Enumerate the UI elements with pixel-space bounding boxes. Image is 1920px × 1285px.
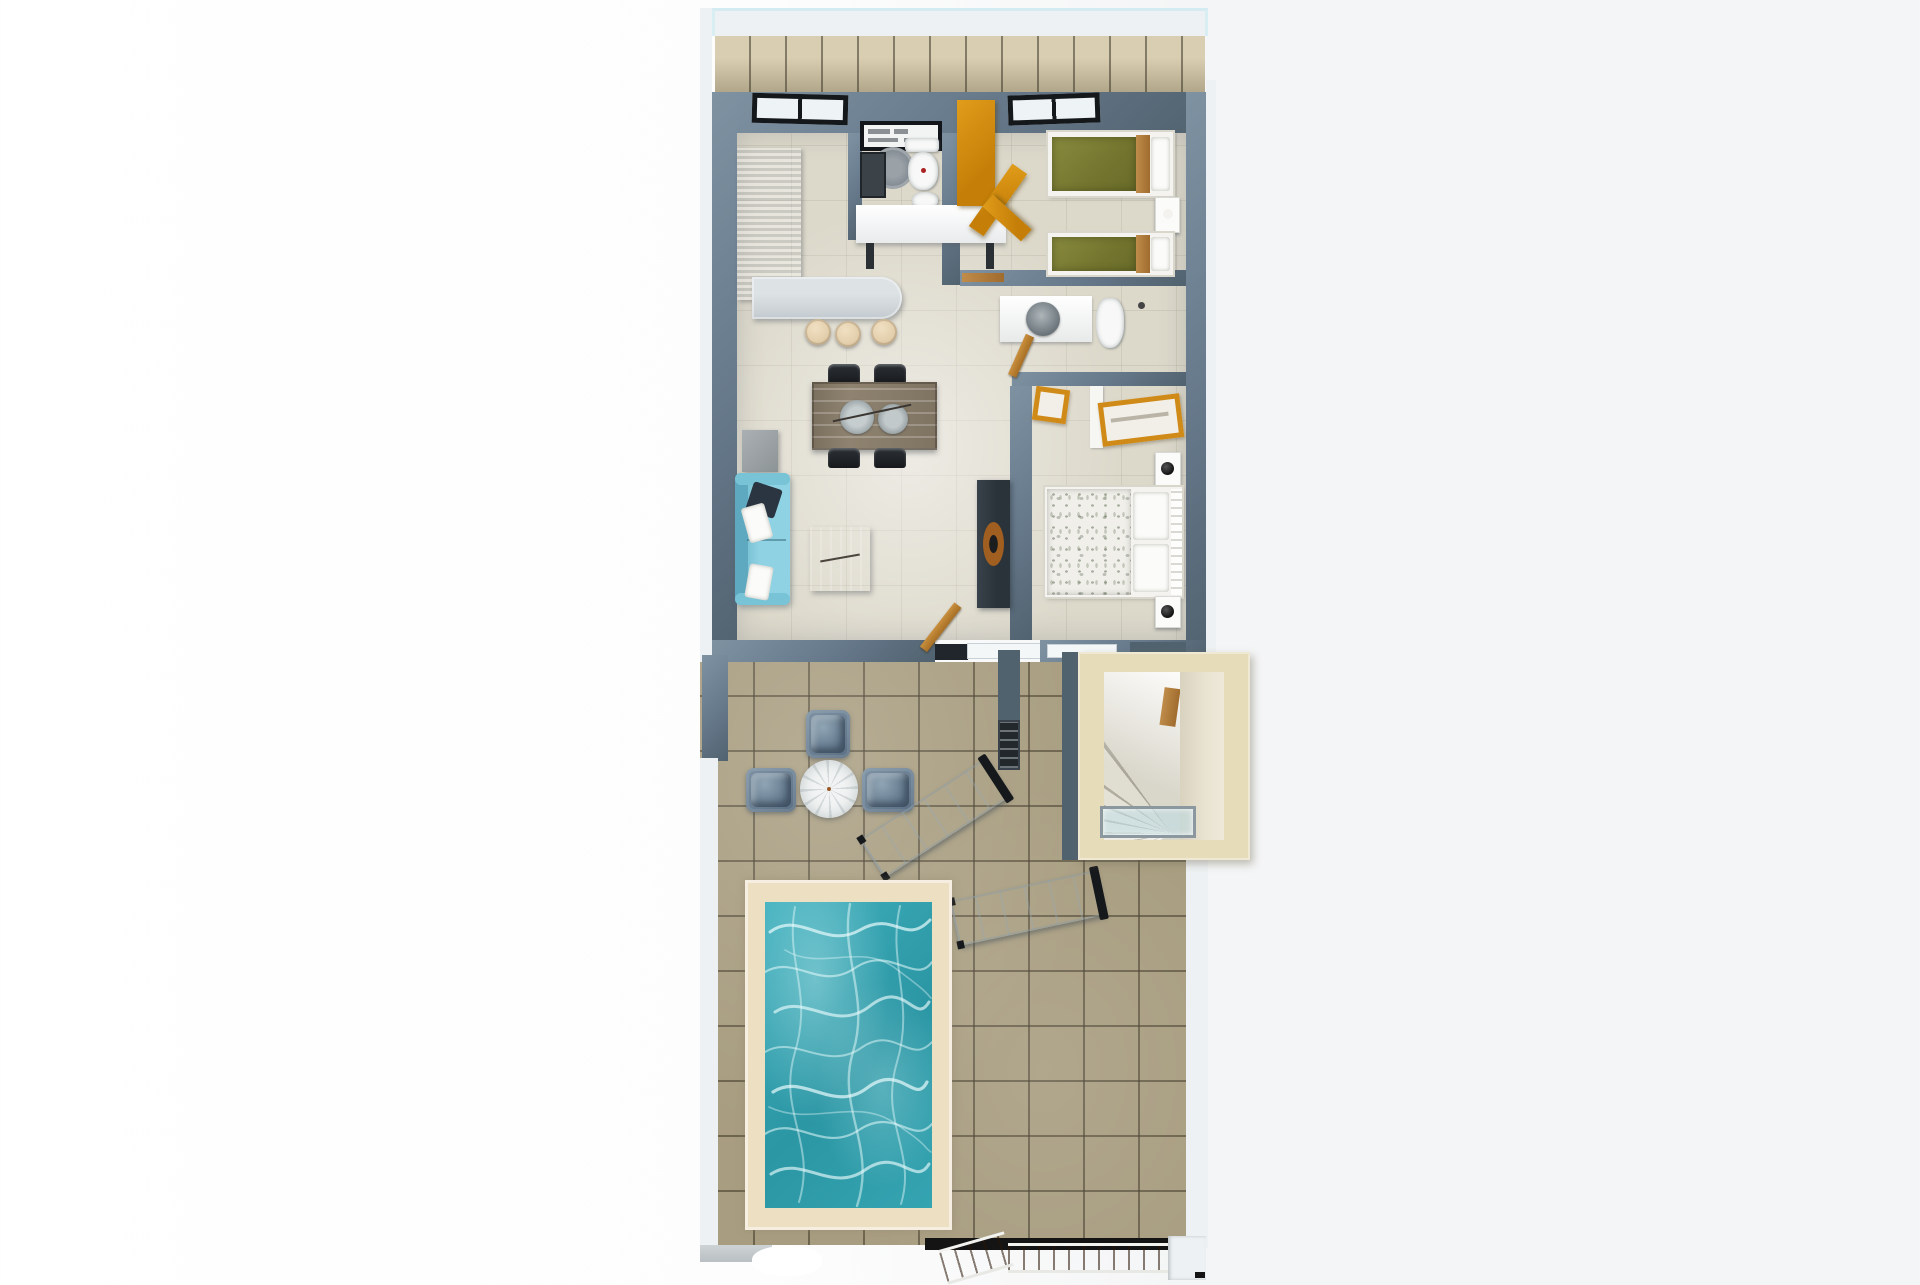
balcony-railing <box>712 8 1208 36</box>
coffee-table-decor <box>820 554 860 563</box>
floor-plan-render <box>0 0 1920 1280</box>
lounger-foot <box>956 940 965 949</box>
patterned-duvet <box>1047 489 1131 595</box>
outer-wall-right <box>1206 80 1216 662</box>
terrace-wall-left <box>700 758 718 1248</box>
bed-mattress <box>1052 237 1136 271</box>
wood-nightstand <box>1155 197 1180 233</box>
glass-railing <box>1100 806 1196 838</box>
coffee-table <box>810 527 870 591</box>
toilet <box>908 152 938 190</box>
toilet <box>1096 298 1124 348</box>
wall-corridor <box>1010 386 1032 640</box>
sofa <box>735 473 790 605</box>
dining-chair <box>828 364 860 384</box>
bar-stool <box>871 319 897 345</box>
pool-ripples <box>765 902 932 1208</box>
luggage-bench <box>1032 386 1070 424</box>
terrace-wall-stub-left <box>702 655 728 761</box>
round-basin <box>1026 302 1060 336</box>
side-table <box>742 430 778 472</box>
orange-desk <box>957 100 995 206</box>
bed-pillow <box>1133 492 1169 540</box>
dark-vanity <box>860 152 886 198</box>
stairwell-opening <box>1104 672 1224 840</box>
nightstand-knob <box>1163 209 1173 219</box>
terrace-armchair <box>862 768 914 812</box>
kitchen-window <box>752 93 849 126</box>
bed-pillow <box>1151 237 1170 271</box>
dining-chair <box>874 448 906 468</box>
single-bed <box>1048 233 1173 275</box>
wooden-bowl <box>983 522 1004 566</box>
tv-console <box>977 480 1010 608</box>
nightstand <box>1155 452 1181 486</box>
bar-stool <box>805 319 831 345</box>
dining-chair <box>874 364 906 384</box>
terrace-door-threshold <box>935 644 968 660</box>
balcony-tile-deck <box>715 36 1205 92</box>
bed-pillow <box>1133 544 1169 592</box>
outer-wall-left <box>700 8 712 662</box>
bed-headboard <box>1136 135 1150 193</box>
bed-headboard <box>1171 489 1182 595</box>
dining-table <box>812 382 937 450</box>
bed-headboard <box>1136 235 1150 273</box>
luggage-bench <box>1098 393 1185 447</box>
table-lamp <box>1161 462 1174 475</box>
room-bedroom-master <box>1032 386 1186 640</box>
bench-strap <box>1111 412 1169 423</box>
balcony <box>712 8 1208 92</box>
stairwell <box>1062 652 1250 860</box>
room-bedroom-twin <box>955 96 1186 270</box>
room-living-dining <box>735 360 1012 640</box>
wall-right <box>1186 92 1206 662</box>
console-leg <box>866 243 874 269</box>
single-bed <box>1048 132 1173 196</box>
terrace-armchair <box>746 768 796 812</box>
round-terrace-table <box>800 760 858 818</box>
kitchen-island <box>752 277 902 319</box>
twin-door-threshold <box>962 273 1004 282</box>
toilet-detail <box>921 168 926 173</box>
bbq-grill <box>1000 722 1018 768</box>
deck-shadow-dot <box>1195 1272 1205 1278</box>
wall-bathroom2-bottom <box>1012 372 1186 386</box>
cistern <box>905 138 939 152</box>
nightstand <box>1155 596 1181 628</box>
terrace-wall-right <box>1186 860 1208 1248</box>
swimming-pool <box>765 902 932 1208</box>
bed-pillow <box>1151 137 1170 191</box>
wall-hook <box>1138 302 1145 309</box>
wood-walkway <box>1008 1243 1168 1273</box>
table-lamp <box>1161 605 1174 618</box>
dining-chair <box>828 448 860 468</box>
bed-mattress <box>1052 137 1136 191</box>
double-bed <box>1045 487 1182 597</box>
wall-bottom-living <box>712 640 935 662</box>
terrace-armchair <box>806 710 850 758</box>
wall-left <box>712 92 737 662</box>
render-white-patch <box>752 1246 822 1276</box>
bar-stool <box>835 321 861 347</box>
